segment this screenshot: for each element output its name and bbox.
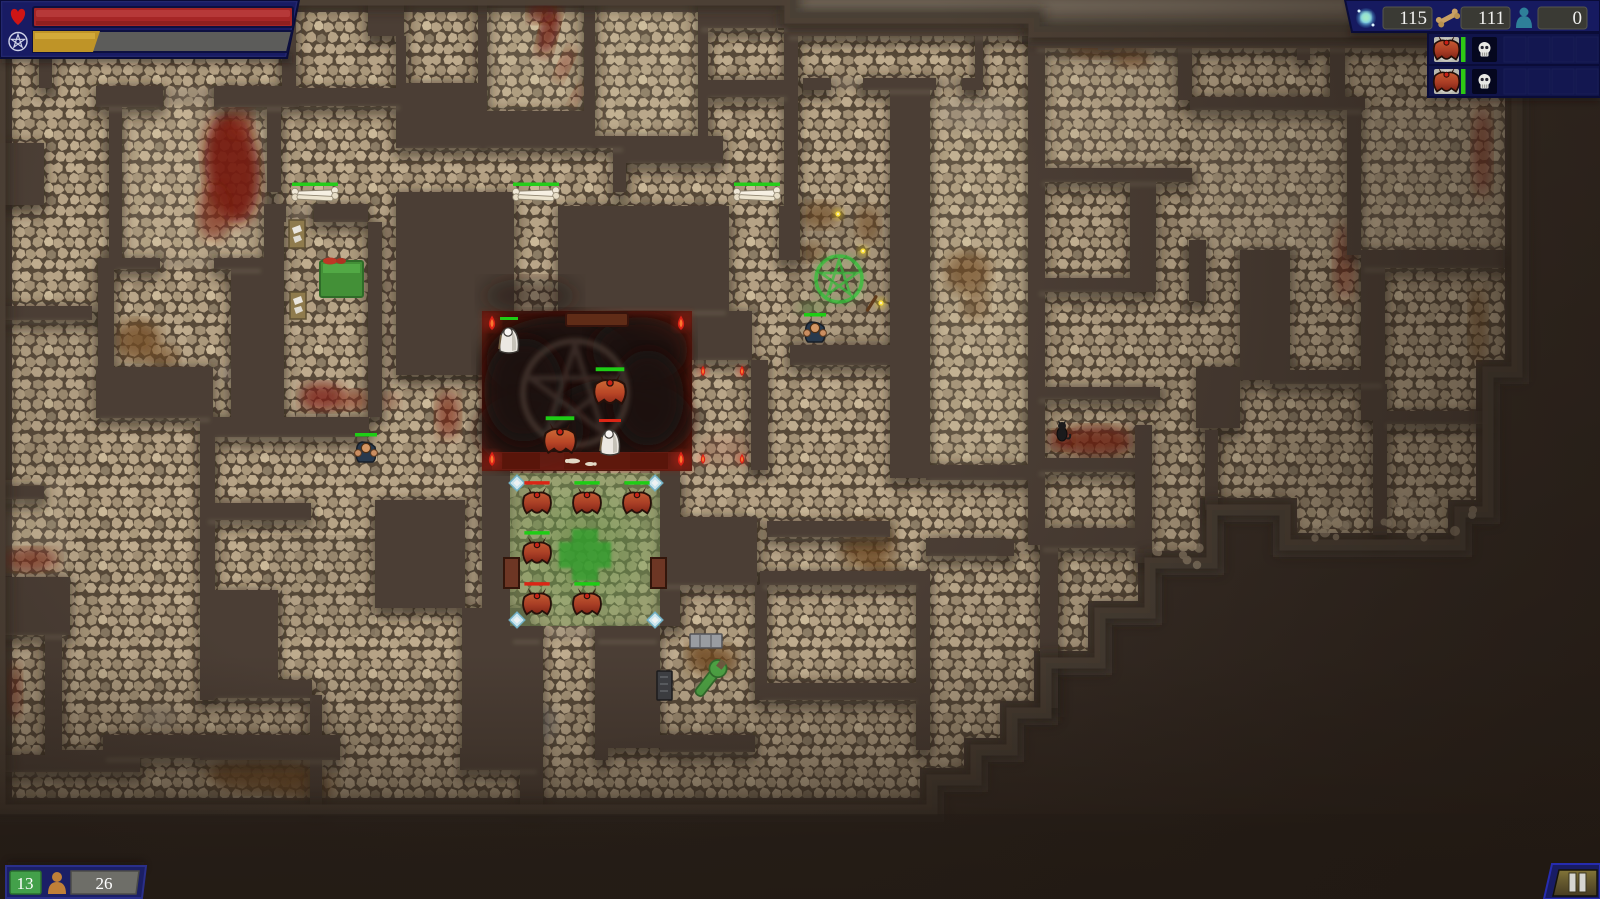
- svg-text:111: 111: [1478, 8, 1505, 29]
- svg-text:13: 13: [17, 874, 34, 893]
- svg-text:115: 115: [1399, 8, 1427, 29]
- svg-text:0: 0: [1573, 8, 1583, 29]
- svg-text:26: 26: [96, 874, 113, 893]
